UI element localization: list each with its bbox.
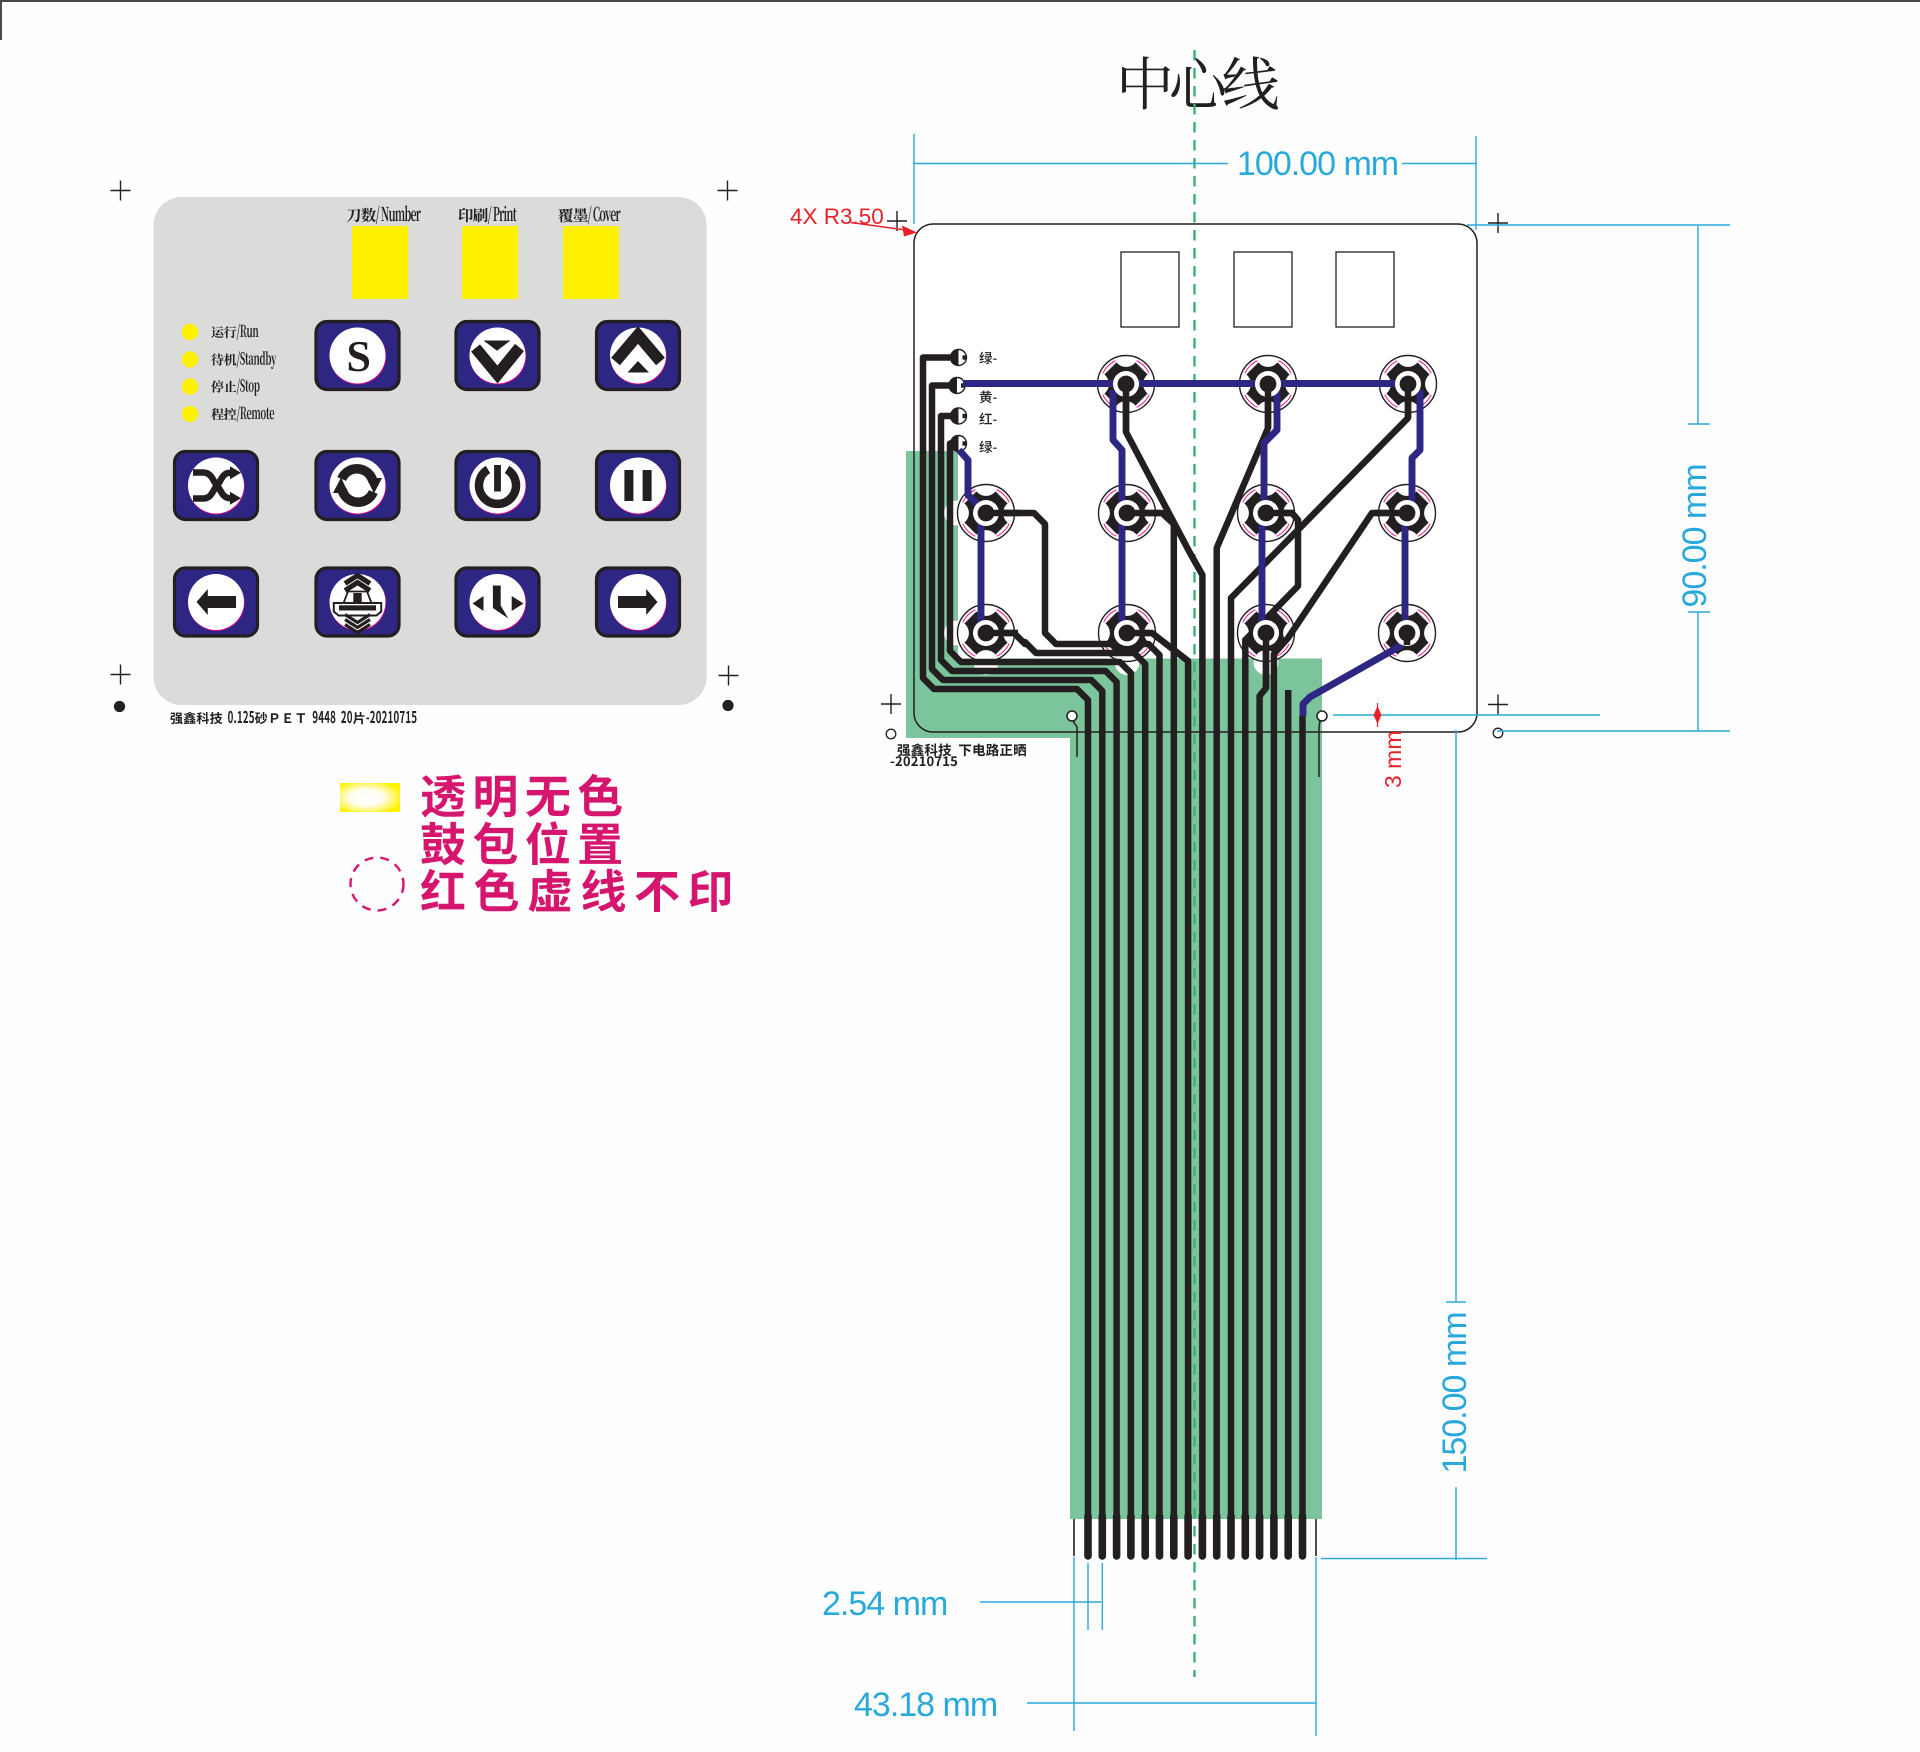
svg-text:2.54 mm: 2.54 mm: [822, 1585, 947, 1623]
svg-text:43.18 mm: 43.18 mm: [854, 1686, 997, 1724]
svg-text:90.00 mm: 90.00 mm: [1676, 464, 1714, 607]
svg-text:3 mm: 3 mm: [1380, 731, 1406, 789]
svg-text:150.00 mm: 150.00 mm: [1436, 1312, 1474, 1473]
svg-text:100.00 mm: 100.00 mm: [1237, 145, 1398, 183]
